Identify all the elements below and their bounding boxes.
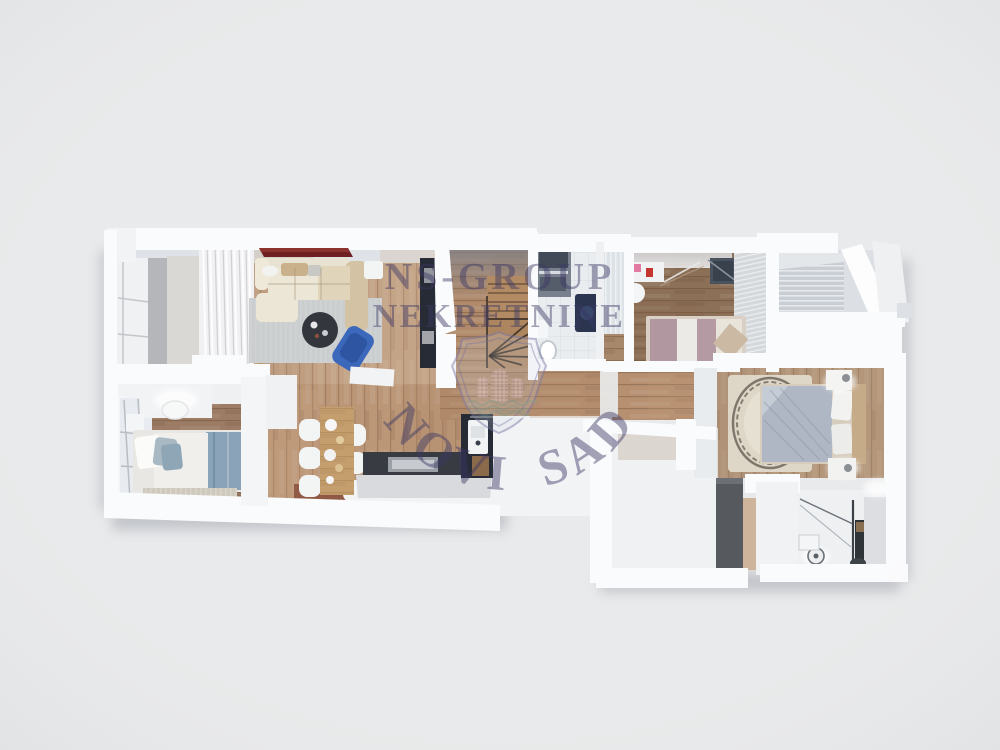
- svg-text:NS-GROUP: NS-GROUP: [385, 256, 615, 298]
- svg-text:NEKRETNINE: NEKRETNINE: [373, 298, 626, 335]
